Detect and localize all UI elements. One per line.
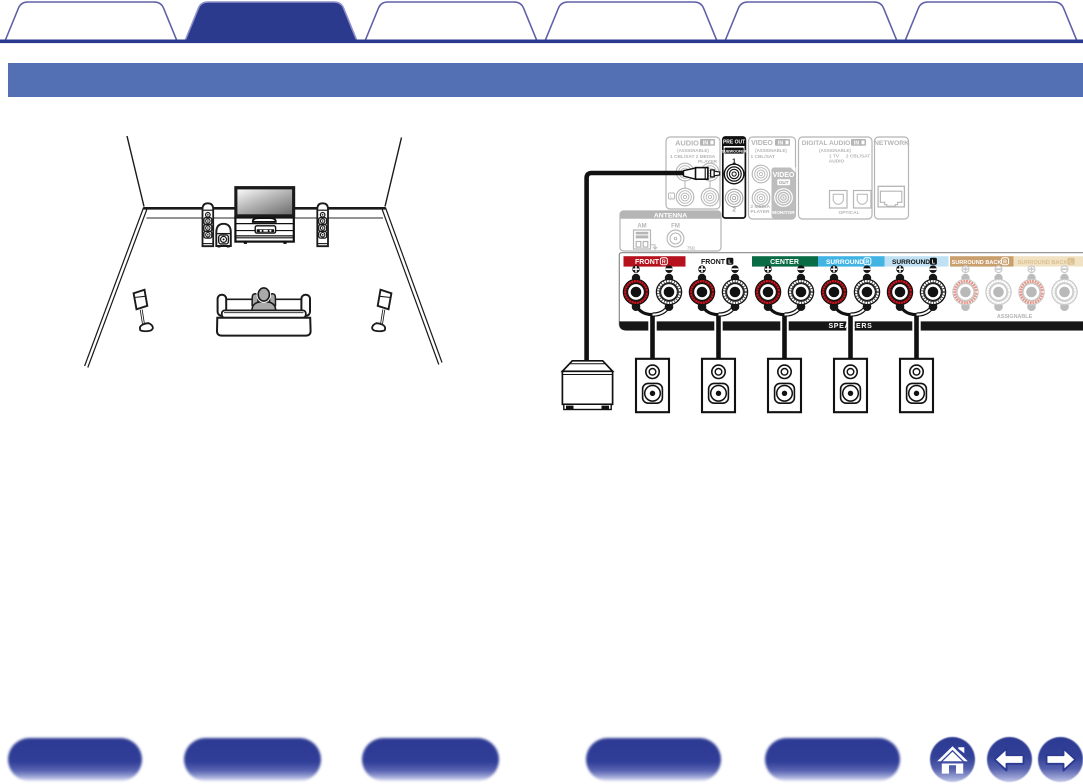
svg-text:SURROUND: SURROUND: [892, 259, 930, 266]
svg-text:1 CBL/SAT: 1 CBL/SAT: [751, 154, 775, 160]
svg-text:(ASSIGNABLE): (ASSIGNABLE): [819, 148, 851, 153]
svg-text:VIDEO: VIDEO: [773, 172, 795, 179]
svg-text:SURROUND BACK: SURROUND BACK: [1017, 260, 1067, 266]
svg-text:PLAYER: PLAYER: [751, 209, 771, 215]
svg-text:AUDIO: AUDIO: [829, 159, 845, 165]
svg-text:FM: FM: [671, 224, 680, 230]
svg-text:IN: IN: [778, 141, 783, 147]
svg-text:R: R: [1003, 260, 1007, 266]
svg-text:IN: IN: [703, 141, 708, 147]
svg-text:FRONT: FRONT: [635, 259, 660, 266]
svg-text:AUDIO: AUDIO: [675, 139, 699, 148]
svg-text:(ASSIGNABLE): (ASSIGNABLE): [677, 148, 709, 153]
svg-text:ANTENNA: ANTENNA: [654, 213, 687, 220]
svg-text:MONITOR: MONITOR: [772, 210, 795, 216]
svg-text:2 CBL/SAT: 2 CBL/SAT: [846, 154, 870, 160]
svg-text:(ASSIGNABLE): (ASSIGNABLE): [755, 148, 787, 153]
svg-text:OPTICAL: OPTICAL: [838, 210, 859, 216]
svg-text:75Ω: 75Ω: [687, 246, 696, 251]
svg-text:SUBWOOFER: SUBWOOFER: [722, 149, 747, 153]
svg-text:IN: IN: [854, 141, 859, 147]
svg-text:PRE OUT: PRE OUT: [723, 140, 745, 146]
svg-text:CENTER: CENTER: [770, 259, 799, 266]
svg-text:NETWORK: NETWORK: [874, 140, 909, 147]
svg-text:FRONT: FRONT: [701, 259, 726, 266]
svg-text:DIGITAL AUDIO: DIGITAL AUDIO: [802, 140, 851, 147]
svg-text:R: R: [662, 260, 666, 266]
svg-text:VIDEO: VIDEO: [751, 140, 773, 147]
svg-text:R: R: [865, 260, 869, 266]
svg-text:SURROUND BACK: SURROUND BACK: [951, 260, 1001, 266]
svg-text:AM: AM: [637, 224, 646, 230]
svg-text:SURROUND: SURROUND: [826, 259, 864, 266]
svg-text:2: 2: [732, 206, 736, 213]
svg-text:OUT: OUT: [779, 180, 789, 185]
svg-text:ASSIGNABLE: ASSIGNABLE: [997, 314, 1033, 320]
